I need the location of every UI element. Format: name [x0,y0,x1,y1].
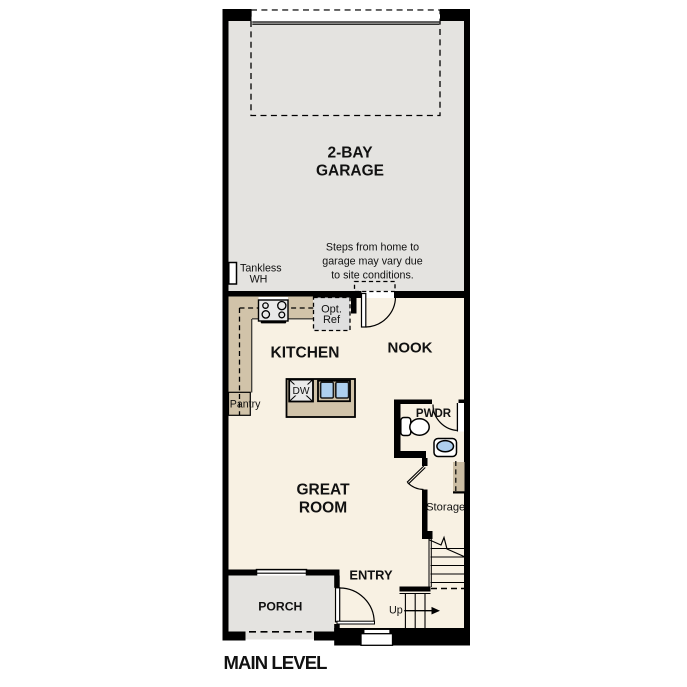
svg-text:GARAGE: GARAGE [316,163,384,180]
svg-text:2-BAY: 2-BAY [327,145,373,162]
svg-text:NOOK: NOOK [388,339,433,356]
svg-text:ENTRY: ENTRY [349,567,393,582]
svg-text:MAIN LEVEL: MAIN LEVEL [224,652,328,673]
svg-text:garage may vary due: garage may vary due [322,256,422,268]
svg-text:DW: DW [293,386,310,397]
svg-text:GREAT: GREAT [296,482,350,499]
svg-text:Pantry: Pantry [230,399,261,411]
svg-text:ROOM: ROOM [299,500,347,517]
svg-text:Steps from home to: Steps from home to [326,242,419,254]
svg-text:KITCHEN: KITCHEN [271,345,340,362]
svg-text:Storage: Storage [426,502,465,514]
svg-text:to site conditions.: to site conditions. [331,270,414,282]
svg-text:Up: Up [389,605,403,617]
svg-text:WH: WH [250,273,268,285]
svg-text:Ref: Ref [323,314,341,326]
svg-text:PORCH: PORCH [258,600,302,614]
